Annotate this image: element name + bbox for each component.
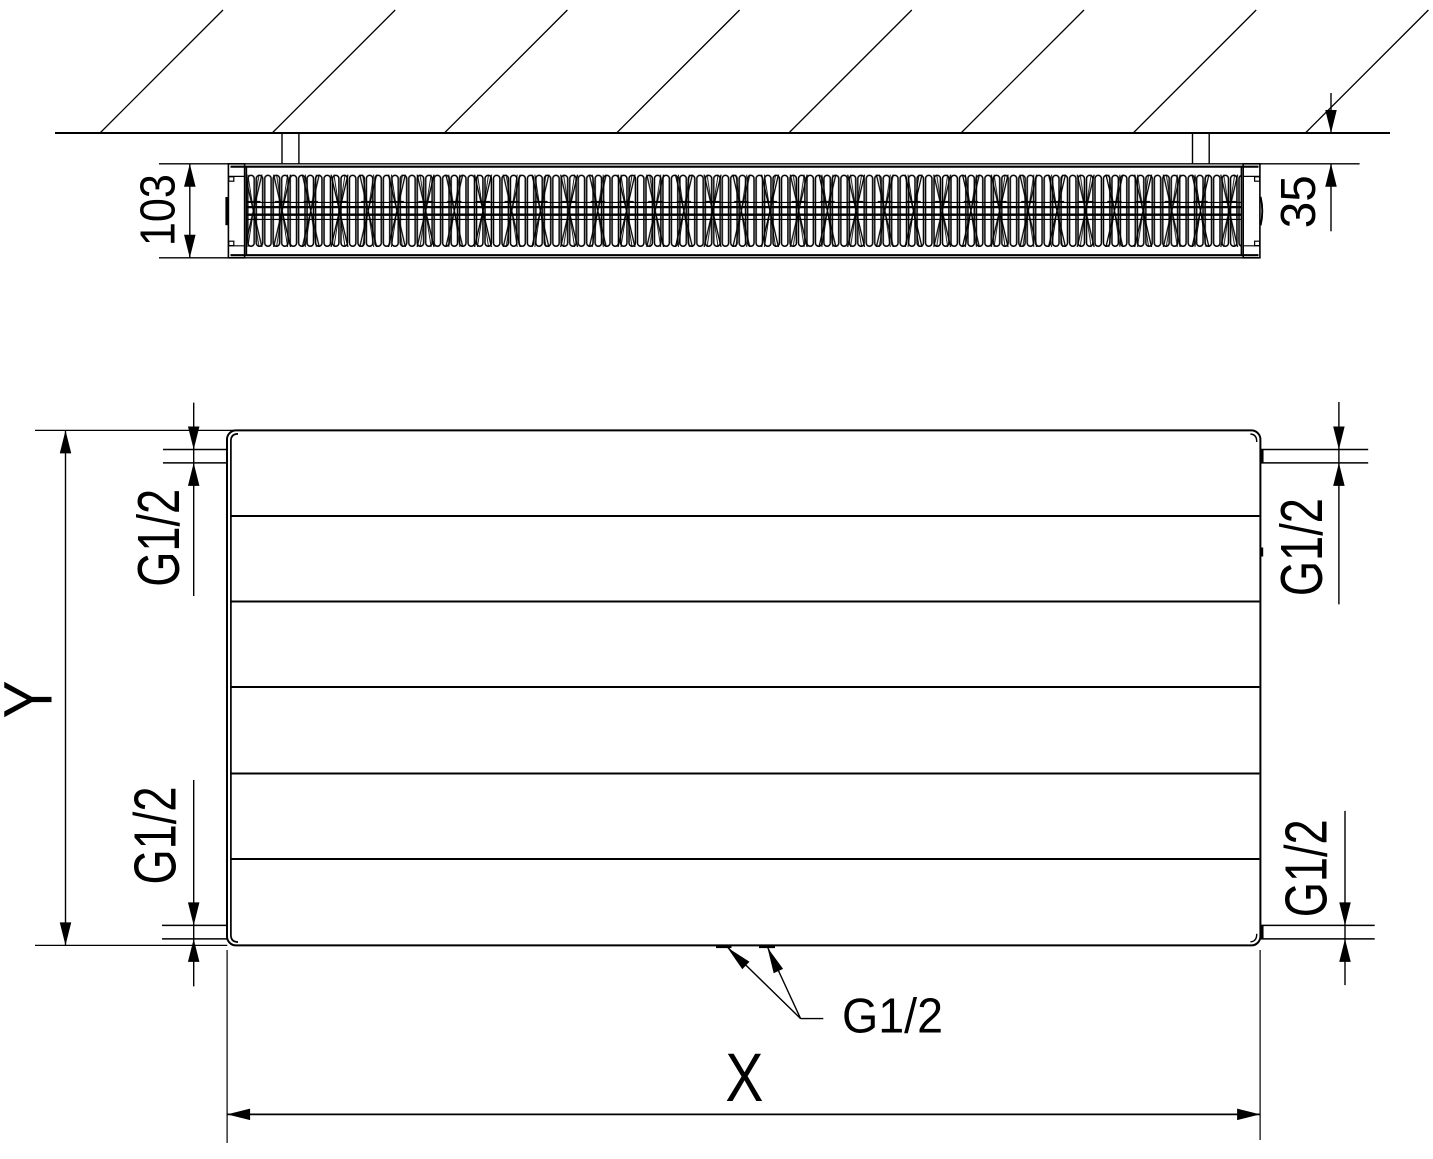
svg-text:G1/2: G1/2 bbox=[1269, 498, 1335, 596]
svg-text:G1/2: G1/2 bbox=[123, 787, 189, 885]
svg-text:35: 35 bbox=[1271, 175, 1326, 228]
svg-text:X: X bbox=[725, 1039, 763, 1116]
svg-text:G1/2: G1/2 bbox=[842, 990, 943, 1044]
svg-text:G1/2: G1/2 bbox=[126, 489, 192, 587]
svg-text:Y: Y bbox=[0, 681, 67, 719]
svg-text:103: 103 bbox=[131, 174, 186, 246]
svg-text:G1/2: G1/2 bbox=[1274, 819, 1340, 917]
